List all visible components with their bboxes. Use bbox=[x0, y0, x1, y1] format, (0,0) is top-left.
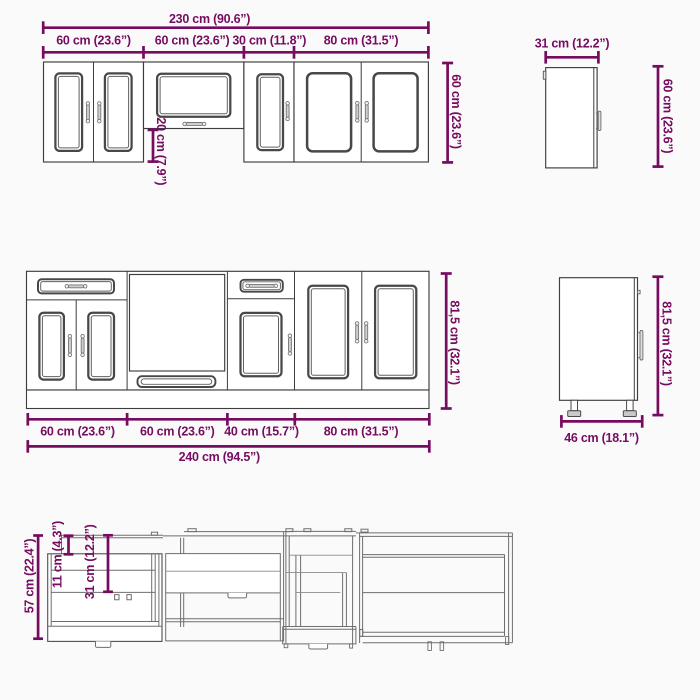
svg-text:30 cm (11.8”): 30 cm (11.8”) bbox=[232, 34, 306, 48]
svg-text:230 cm (90.6”): 230 cm (90.6”) bbox=[169, 12, 250, 26]
svg-text:80 cm (31.5”): 80 cm (31.5”) bbox=[324, 34, 399, 48]
svg-text:57 cm (22.4”): 57 cm (22.4”) bbox=[22, 539, 36, 614]
svg-text:40 cm (15.7”): 40 cm (15.7”) bbox=[224, 425, 299, 439]
svg-text:81,5 cm (32.1”): 81,5 cm (32.1”) bbox=[447, 300, 461, 385]
svg-text:60 cm (23.6”): 60 cm (23.6”) bbox=[449, 74, 463, 149]
svg-text:46 cm (18.1”): 46 cm (18.1”) bbox=[564, 431, 639, 445]
svg-text:81,5 cm (32.1”): 81,5 cm (32.1”) bbox=[660, 301, 674, 386]
svg-text:11 cm (4.3”): 11 cm (4.3”) bbox=[50, 521, 64, 588]
svg-text:60 cm (23.6”): 60 cm (23.6”) bbox=[155, 34, 230, 48]
svg-text:80 cm (31.5”): 80 cm (31.5”) bbox=[324, 425, 399, 439]
svg-text:31 cm (12.2”): 31 cm (12.2”) bbox=[83, 524, 97, 599]
svg-text:20 cm (7.9”): 20 cm (7.9”) bbox=[154, 117, 168, 185]
svg-text:240 cm (94.5”): 240 cm (94.5”) bbox=[179, 450, 260, 464]
svg-text:60 cm (23.6”): 60 cm (23.6”) bbox=[140, 425, 215, 439]
svg-text:60 cm (23.6”): 60 cm (23.6”) bbox=[56, 34, 131, 48]
svg-text:60 cm (23.6”): 60 cm (23.6”) bbox=[660, 79, 674, 154]
svg-text:60 cm (23.6”): 60 cm (23.6”) bbox=[40, 425, 115, 439]
svg-text:31 cm (12.2”): 31 cm (12.2”) bbox=[535, 37, 610, 51]
